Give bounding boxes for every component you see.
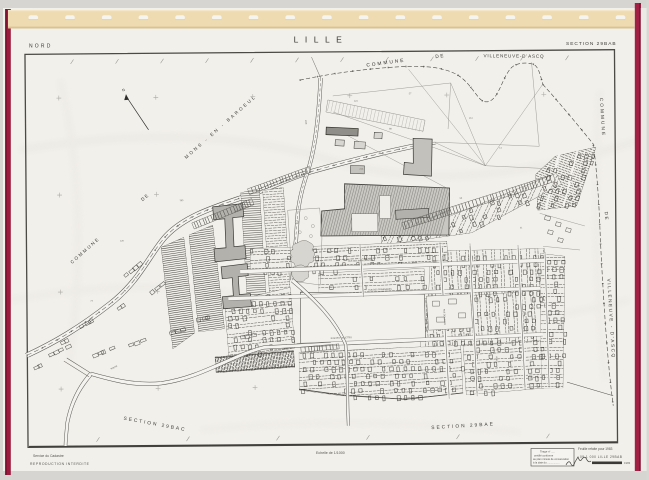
svg-text:NORD: NORD [29, 44, 53, 50]
svg-text:1983: 1983 [624, 461, 631, 465]
svg-text:au plan minute de conservation: au plan minute de conservation [533, 457, 570, 461]
svg-text:SECTION 29BAB: SECTION 29BAB [566, 41, 617, 47]
svg-text:Echelle de 1/1000: Echelle de 1/1000 [316, 451, 345, 455]
svg-text:certifié conforme: certifié conforme [534, 453, 554, 457]
svg-text:à la date du .................: à la date du ................. [533, 461, 560, 465]
svg-text:Service du Cadastre: Service du Cadastre [33, 454, 64, 458]
svg-text:Tirage n° .....: Tirage n° ..... [540, 450, 555, 454]
svg-text:LILLE: LILLE [294, 35, 349, 45]
svg-text:DE: DE [435, 53, 445, 60]
svg-text:RUE: RUE [495, 357, 497, 362]
svg-text:Feuille refaite pour 1983: Feuille refaite pour 1983 [578, 447, 613, 451]
svg-text:DE: DE [604, 212, 610, 222]
svg-text:REPRODUCTION INTERDITE: REPRODUCTION INTERDITE [30, 462, 90, 466]
svg-text:VILLENEUVE-D’ASCQ: VILLENEUVE-D’ASCQ [483, 53, 544, 59]
